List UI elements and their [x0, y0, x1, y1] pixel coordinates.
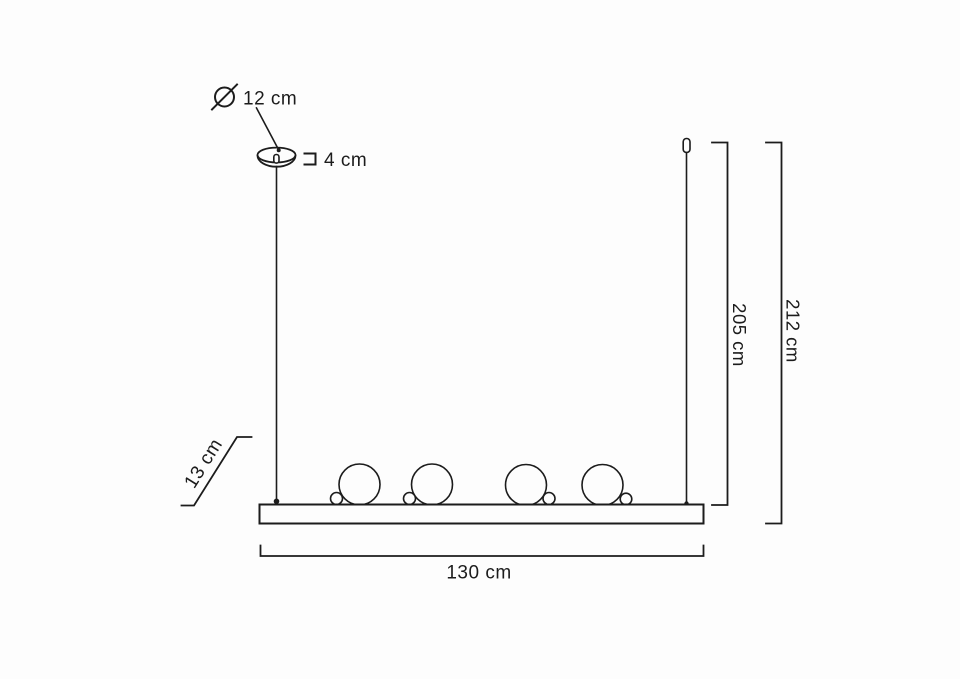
- overall-height-label: 212 cm: [783, 299, 804, 363]
- left-cable-connector: [274, 499, 280, 505]
- right-cable: [683, 139, 690, 506]
- small-globe-4: [620, 493, 632, 505]
- dimension-fixture-height: 13 cm: [181, 435, 252, 505]
- canopy-height-bracket: [305, 154, 316, 165]
- canopy: [258, 148, 296, 167]
- glass-globe-1: [339, 464, 380, 505]
- left-cable: [274, 167, 280, 505]
- dimension-130-line: [261, 546, 704, 557]
- dimension-205-line: [712, 143, 728, 506]
- dimension-height-to-bar-top: 205 cm: [712, 143, 750, 506]
- lamp-bar: [260, 505, 704, 524]
- canopy-diameter-label: 12 cm: [243, 89, 297, 110]
- pendant-lamp-diagram: 12 cm 4 cm: [0, 0, 960, 679]
- glass-globe-4: [582, 465, 623, 506]
- glass-globes: [331, 464, 632, 506]
- diagram-canvas: 12 cm 4 cm: [0, 0, 960, 679]
- small-globe-3: [543, 493, 555, 505]
- right-cable-loop: [683, 139, 690, 153]
- canopy-cable-grip: [274, 155, 279, 164]
- small-globe-1: [331, 493, 343, 505]
- diameter-icon: [212, 85, 237, 110]
- dimension-overall-height: 212 cm: [766, 143, 804, 524]
- leader-dot: [277, 148, 281, 152]
- glass-globe-2: [412, 464, 453, 505]
- dimension-212-line: [766, 143, 782, 524]
- canopy-height-label: 4 cm: [324, 150, 367, 171]
- dimension-bar-length: 130 cm: [261, 546, 704, 584]
- bracket-path: [305, 154, 316, 165]
- glass-globe-3: [506, 465, 547, 506]
- leader-line: [257, 108, 279, 150]
- small-globe-2: [404, 493, 416, 505]
- height-to-bar-top-label: 205 cm: [729, 303, 750, 367]
- bar-length-label: 130 cm: [446, 563, 511, 584]
- canopy-diameter-leader: [257, 108, 281, 152]
